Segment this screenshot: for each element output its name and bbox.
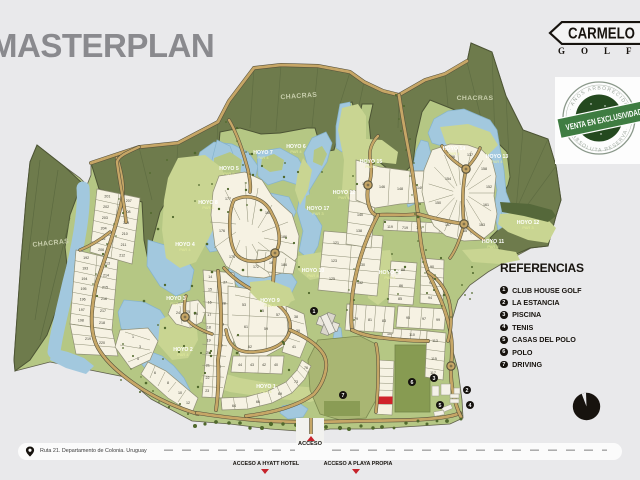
svg-text:3: 3 xyxy=(139,345,141,349)
svg-text:198: 198 xyxy=(78,319,84,323)
svg-text:217: 217 xyxy=(100,309,106,313)
svg-text:206: 206 xyxy=(98,248,104,252)
svg-text:176: 176 xyxy=(219,229,225,233)
svg-text:119: 119 xyxy=(387,225,393,229)
svg-text:95: 95 xyxy=(406,316,410,320)
svg-text:158: 158 xyxy=(481,167,487,171)
svg-text:216: 216 xyxy=(101,297,107,301)
svg-text:197: 197 xyxy=(79,308,85,312)
svg-text:76: 76 xyxy=(304,366,308,370)
svg-text:15: 15 xyxy=(208,288,212,292)
svg-text:PAR 4: PAR 4 xyxy=(177,352,189,357)
svg-text:140: 140 xyxy=(357,213,363,217)
svg-text:137: 137 xyxy=(467,153,473,157)
svg-text:138: 138 xyxy=(356,229,362,233)
svg-text:22: 22 xyxy=(206,376,210,380)
svg-text:6: 6 xyxy=(411,380,414,386)
svg-text:210: 210 xyxy=(122,232,128,236)
svg-text:194: 194 xyxy=(81,277,87,281)
svg-text:154: 154 xyxy=(445,177,451,181)
svg-text:PAR 4: PAR 4 xyxy=(260,389,272,394)
svg-text:110: 110 xyxy=(409,333,415,337)
svg-text:8: 8 xyxy=(167,381,169,385)
svg-text:PAR 5: PAR 5 xyxy=(264,303,276,308)
svg-text:214: 214 xyxy=(103,273,109,277)
svg-text:10: 10 xyxy=(178,391,182,395)
svg-text:38: 38 xyxy=(294,315,298,319)
svg-text:94: 94 xyxy=(428,296,432,300)
svg-text:PAR 4: PAR 4 xyxy=(338,195,350,200)
svg-text:7: 7 xyxy=(342,393,345,399)
svg-text:43: 43 xyxy=(250,363,254,367)
svg-text:40: 40 xyxy=(274,363,278,367)
svg-text:PAR 5: PAR 5 xyxy=(487,244,499,249)
svg-text:PAR 4: PAR 4 xyxy=(202,205,214,210)
svg-text:161: 161 xyxy=(483,203,489,207)
svg-text:201: 201 xyxy=(104,195,110,199)
svg-text:PAR 4: PAR 4 xyxy=(179,247,191,252)
svg-text:123: 123 xyxy=(331,259,337,263)
svg-text:220: 220 xyxy=(99,341,105,345)
svg-text:6: 6 xyxy=(154,371,156,375)
svg-text:215: 215 xyxy=(102,285,108,289)
svg-text:212: 212 xyxy=(119,254,125,258)
svg-text:41: 41 xyxy=(292,345,296,349)
svg-text:59: 59 xyxy=(264,327,268,331)
svg-text:CHACRAS: CHACRAS xyxy=(457,95,494,102)
svg-text:195: 195 xyxy=(81,287,87,291)
svg-text:CARMELO: CARMELO xyxy=(568,26,635,43)
svg-text:121: 121 xyxy=(333,241,339,245)
svg-text:18: 18 xyxy=(207,326,211,330)
svg-text:19: 19 xyxy=(207,338,211,342)
svg-text:64: 64 xyxy=(232,404,236,408)
svg-text:62: 62 xyxy=(248,345,252,349)
svg-text:99: 99 xyxy=(436,318,440,322)
svg-text:86: 86 xyxy=(399,284,403,288)
svg-text:218: 218 xyxy=(99,321,105,325)
svg-text:24: 24 xyxy=(176,311,180,315)
svg-text:73: 73 xyxy=(294,380,298,384)
svg-text:719: 719 xyxy=(402,226,408,230)
svg-text:186: 186 xyxy=(281,263,287,267)
svg-text:192: 192 xyxy=(83,256,89,260)
svg-text:PAR 4: PAR 4 xyxy=(307,273,319,278)
svg-text:1: 1 xyxy=(132,335,134,339)
svg-text:115: 115 xyxy=(431,357,437,361)
svg-text:163: 163 xyxy=(479,223,485,227)
svg-text:88: 88 xyxy=(401,268,405,272)
svg-text:PAR 4: PAR 4 xyxy=(290,149,302,154)
svg-text:27: 27 xyxy=(223,281,227,285)
svg-text:PAR 4: PAR 4 xyxy=(448,151,460,156)
svg-text:85: 85 xyxy=(398,297,402,301)
svg-text:81: 81 xyxy=(368,318,372,322)
svg-text:57: 57 xyxy=(276,313,280,317)
svg-text:12: 12 xyxy=(186,401,190,405)
svg-text:17: 17 xyxy=(207,313,211,317)
svg-text:5: 5 xyxy=(439,403,442,409)
svg-text:69: 69 xyxy=(278,392,282,396)
svg-text:90: 90 xyxy=(430,265,434,269)
svg-text:219: 219 xyxy=(85,337,91,341)
svg-text:53: 53 xyxy=(242,303,246,307)
svg-text:211: 211 xyxy=(121,243,127,247)
svg-text:196: 196 xyxy=(80,298,86,302)
svg-text:PAR 3: PAR 3 xyxy=(365,164,377,169)
svg-text:203: 203 xyxy=(102,216,108,220)
svg-text:PAR 4: PAR 4 xyxy=(257,155,269,160)
svg-text:61: 61 xyxy=(244,325,248,329)
svg-text:5: 5 xyxy=(137,357,139,361)
svg-text:3: 3 xyxy=(433,376,436,382)
svg-text:PAR 3: PAR 3 xyxy=(522,225,534,230)
svg-text:16: 16 xyxy=(208,300,212,304)
svg-text:113: 113 xyxy=(432,339,438,343)
svg-text:2: 2 xyxy=(466,388,469,394)
svg-text:21: 21 xyxy=(206,364,210,368)
svg-text:174: 174 xyxy=(229,255,235,259)
svg-text:125: 125 xyxy=(329,277,335,281)
svg-text:177: 177 xyxy=(225,197,231,201)
svg-text:202: 202 xyxy=(103,205,109,209)
svg-text:PAR 3: PAR 3 xyxy=(312,211,324,216)
svg-text:23: 23 xyxy=(205,389,209,393)
svg-text:14: 14 xyxy=(208,275,212,279)
svg-text:44: 44 xyxy=(238,363,242,367)
svg-text:PAR 4: PAR 4 xyxy=(384,275,396,280)
svg-text:193: 193 xyxy=(82,266,88,270)
svg-text:152: 152 xyxy=(486,185,492,189)
svg-text:PAR 4: PAR 4 xyxy=(170,301,182,306)
svg-text:1: 1 xyxy=(313,309,316,315)
svg-text:PAR 5: PAR 5 xyxy=(223,171,235,176)
svg-text:204: 204 xyxy=(101,227,107,231)
svg-text:66: 66 xyxy=(256,400,260,404)
svg-text:83: 83 xyxy=(382,319,386,323)
svg-text:146: 146 xyxy=(379,185,385,189)
svg-text:207: 207 xyxy=(126,199,132,203)
svg-text:148: 148 xyxy=(397,187,403,191)
svg-text:97: 97 xyxy=(422,317,426,321)
svg-text:150: 150 xyxy=(435,201,441,205)
svg-text:PAR 4: PAR 4 xyxy=(491,159,503,164)
svg-text:4: 4 xyxy=(469,403,472,409)
svg-text:42: 42 xyxy=(262,363,266,367)
